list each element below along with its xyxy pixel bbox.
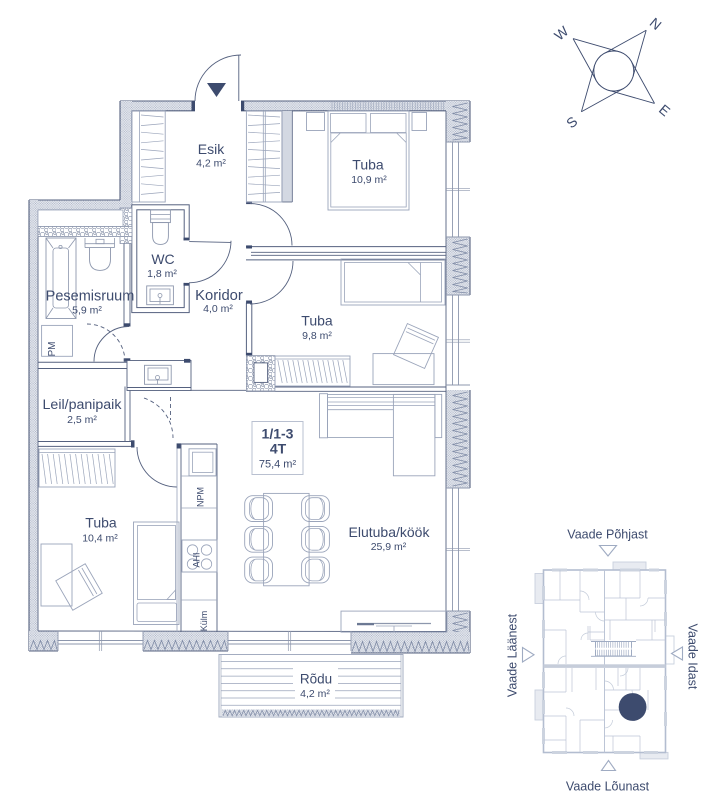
svg-text:PM: PM [47, 342, 58, 357]
svg-text:75,4 m²: 75,4 m² [259, 459, 297, 471]
svg-text:Rõdu: Rõdu [300, 672, 332, 687]
svg-text:9,8 m²: 9,8 m² [302, 330, 332, 342]
svg-text:Vaade Lõunast: Vaade Lõunast [566, 780, 650, 794]
svg-text:NPM: NPM [196, 487, 206, 507]
svg-text:4T: 4T [270, 441, 287, 457]
svg-text:5,9 m²: 5,9 m² [72, 305, 102, 317]
svg-text:1,8 m²: 1,8 m² [147, 268, 177, 280]
svg-text:Koridor: Koridor [195, 288, 243, 304]
svg-text:Vaade Idast: Vaade Idast [686, 624, 700, 690]
svg-text:4,0 m²: 4,0 m² [203, 303, 233, 315]
svg-text:Tuba: Tuba [301, 313, 333, 329]
svg-text:25,9 m²: 25,9 m² [371, 541, 407, 553]
svg-text:WC: WC [151, 251, 174, 267]
svg-text:Vaade Läänest: Vaade Läänest [506, 613, 520, 697]
svg-text:Esik: Esik [198, 141, 225, 157]
svg-text:2,5 m²: 2,5 m² [67, 414, 97, 426]
svg-text:Leil/panipaik: Leil/panipaik [43, 397, 123, 413]
svg-text:Elutuba/köök: Elutuba/köök [349, 524, 431, 540]
svg-text:Vaade Põhjast: Vaade Põhjast [567, 528, 648, 542]
svg-text:10,4 m²: 10,4 m² [82, 533, 118, 545]
svg-text:4,2 m²: 4,2 m² [196, 158, 226, 170]
svg-text:4,2 m²: 4,2 m² [300, 688, 330, 700]
svg-text:Külm: Külm [199, 611, 209, 632]
svg-text:Pesemisruum: Pesemisruum [46, 289, 135, 305]
svg-text:Tuba: Tuba [85, 515, 117, 531]
svg-text:1/1-3: 1/1-3 [262, 426, 294, 442]
svg-text:AHI: AHI [192, 552, 202, 567]
svg-text:10,9 m²: 10,9 m² [351, 174, 387, 186]
svg-text:Tuba: Tuba [352, 156, 384, 172]
